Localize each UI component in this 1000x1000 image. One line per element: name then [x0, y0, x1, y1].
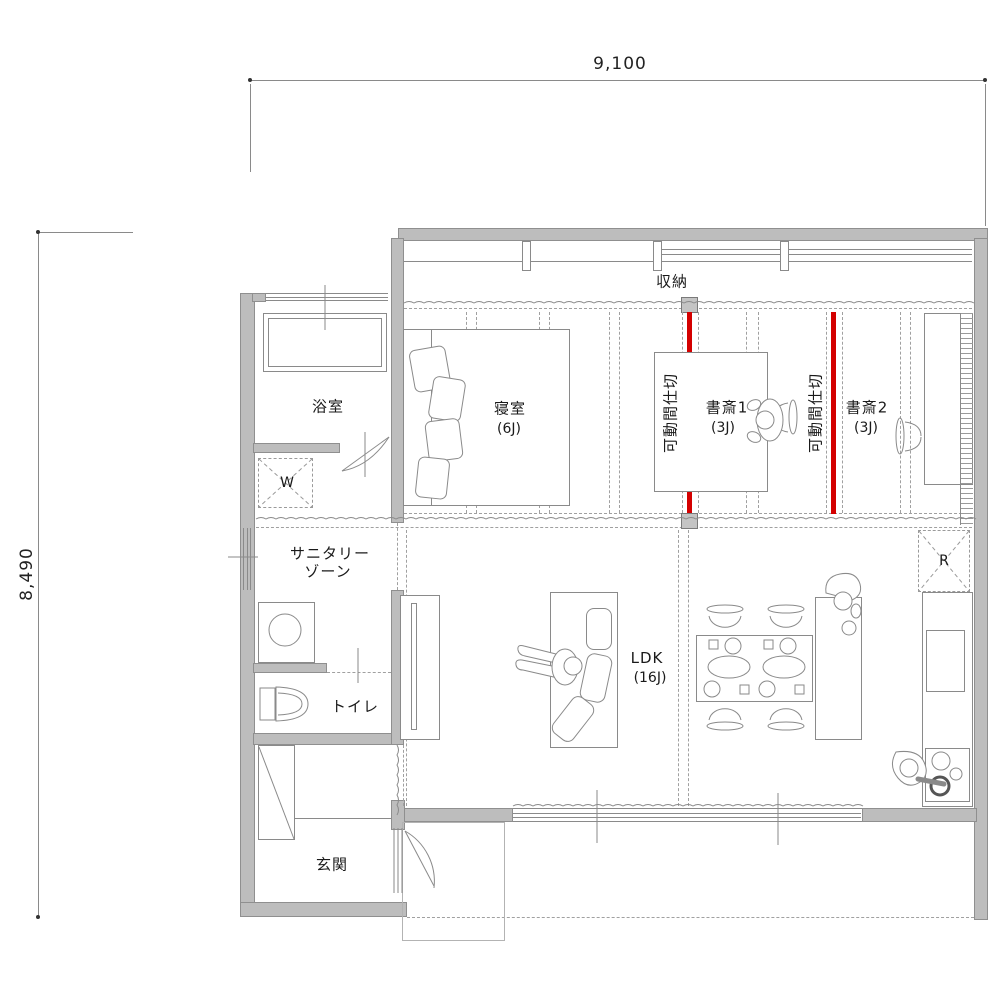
floor-plan: 9,100 8,490 [0, 0, 1000, 1000]
partition1-cap-bottom [681, 513, 698, 529]
closet-divider-2 [653, 241, 662, 271]
dimension-width-label: 9,100 [593, 54, 647, 74]
storage-label: 収納 [656, 271, 688, 292]
wall-toilet-entrance [253, 733, 392, 745]
washbasin-counter [258, 602, 315, 663]
track-dash [826, 312, 827, 513]
closet-front-line [404, 261, 972, 262]
partition1-cap-top [681, 297, 698, 313]
bathtub-inner [268, 318, 382, 367]
bedroom-label: 寝室 [494, 398, 526, 419]
wall-bottom-right [862, 808, 977, 822]
kitchen-sink [926, 630, 965, 692]
study1-chair [774, 400, 797, 434]
window-sanitary-left-mid [247, 528, 248, 590]
tv [411, 603, 417, 730]
dimension-line-top [250, 80, 985, 81]
entrance-porch [402, 822, 505, 941]
ldk-dash-center1 [678, 530, 679, 806]
entrance-label: 玄関 [316, 854, 348, 875]
ldk-label: LDK [631, 649, 664, 667]
toilet-label: トイレ [331, 696, 379, 717]
track-dash [900, 312, 901, 513]
track-dash [609, 312, 610, 513]
dimension-ext-left-top [38, 232, 133, 233]
track-dash [910, 312, 911, 513]
closet-shelf-line1 [657, 249, 972, 250]
dining-table [696, 635, 813, 702]
closet-shelf-line2 [657, 254, 972, 255]
study2-size-label: (3J) [854, 420, 878, 436]
study1-size-label: (3J) [711, 420, 735, 436]
wall-top-main [398, 228, 988, 241]
washer-label: W [280, 475, 294, 491]
dimension-ext-top-right [985, 84, 986, 226]
bath-door-leaf [342, 437, 389, 471]
entrance-ldk-dash [403, 745, 404, 806]
wall-basin-side [253, 663, 327, 673]
dimension-line-left [38, 232, 39, 917]
closet-divider-1 [522, 241, 531, 271]
closet-divider-3 [780, 241, 789, 271]
sanitary-label-line2: ゾーン [304, 561, 351, 582]
entrance-step-line [295, 818, 391, 819]
mid-belt-dash-lower [256, 527, 972, 528]
window-ldk-south-rail1 [513, 813, 861, 814]
wall-bath-sanitary [253, 443, 340, 453]
wall-left-block-top-corner [252, 293, 266, 302]
wall-bottom-ldk-left [398, 808, 513, 822]
window-ldk-south-rail2 [513, 817, 861, 818]
wall-left-block-west [240, 293, 255, 917]
tv-board [400, 595, 440, 740]
dimension-ext-top-left [250, 84, 251, 172]
study2-label: 書斎2 [846, 397, 889, 418]
window-bath-top-mid [266, 297, 388, 298]
track-dash [619, 312, 620, 513]
bedroom-size-label: (6J) [497, 421, 521, 437]
toilet-door-dash [327, 672, 391, 673]
kitchen-island [815, 597, 862, 740]
window-ldk-south [513, 808, 862, 822]
ldk-dash-center2 [688, 530, 689, 806]
ldk-size-label: (16J) [634, 670, 667, 686]
bathroom-label: 浴室 [312, 396, 344, 417]
stove [925, 748, 970, 802]
movable-partition-2 [831, 312, 836, 514]
bed-headboard-line [431, 329, 432, 505]
study2-bookshelf [960, 313, 973, 525]
fridge-label: R [939, 553, 949, 569]
partition2-label: 可動間仕切 [805, 373, 826, 453]
track-dash [842, 312, 843, 513]
study1-label: 書斎1 [706, 397, 749, 418]
sofa-cushion-1 [586, 608, 612, 650]
toilet-fixture [260, 687, 308, 721]
bath-door-arc [342, 437, 389, 471]
bed [403, 329, 570, 506]
sanitary-ldk-opening-dash [397, 523, 398, 590]
partition1-label: 可動間仕切 [660, 373, 681, 453]
dimension-height-label: 8,490 [17, 547, 37, 601]
mid-accordion-wave [256, 518, 976, 520]
shoe-closet [258, 745, 295, 840]
wall-left-block-bottom [240, 902, 407, 917]
